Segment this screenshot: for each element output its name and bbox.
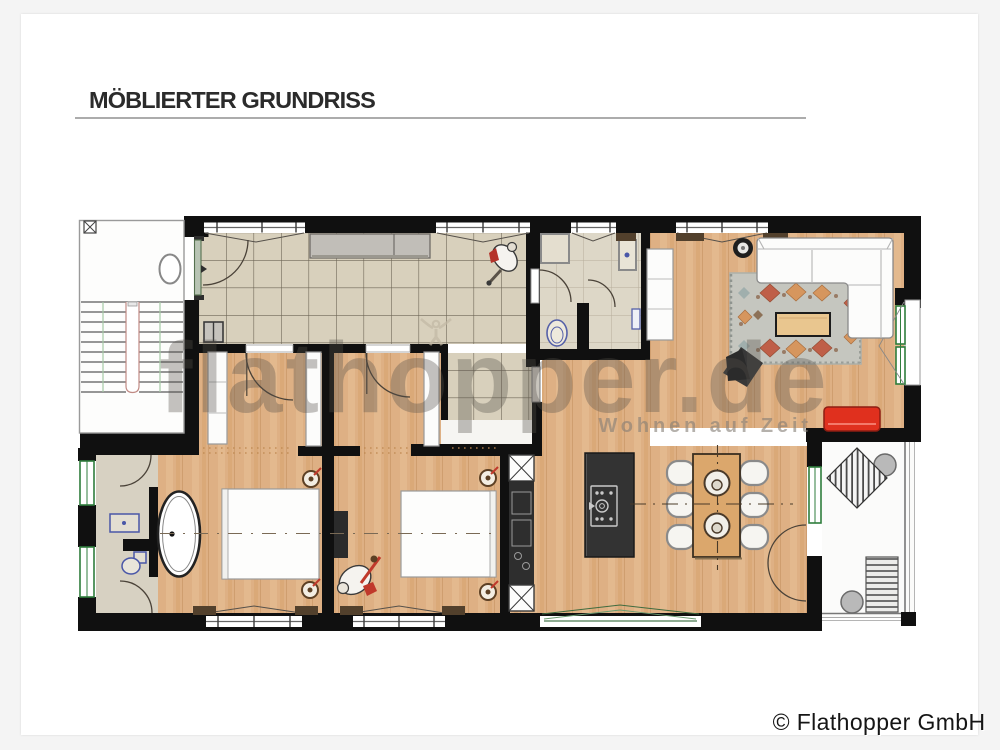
svg-text:Wohnen auf Zeit: Wohnen auf Zeit <box>598 415 812 437</box>
svg-text:MÖBLIERTER GRUNDRISS: MÖBLIERTER GRUNDRISS <box>89 87 375 113</box>
svg-text:© Flathopper GmbH: © Flathopper GmbH <box>773 709 986 735</box>
